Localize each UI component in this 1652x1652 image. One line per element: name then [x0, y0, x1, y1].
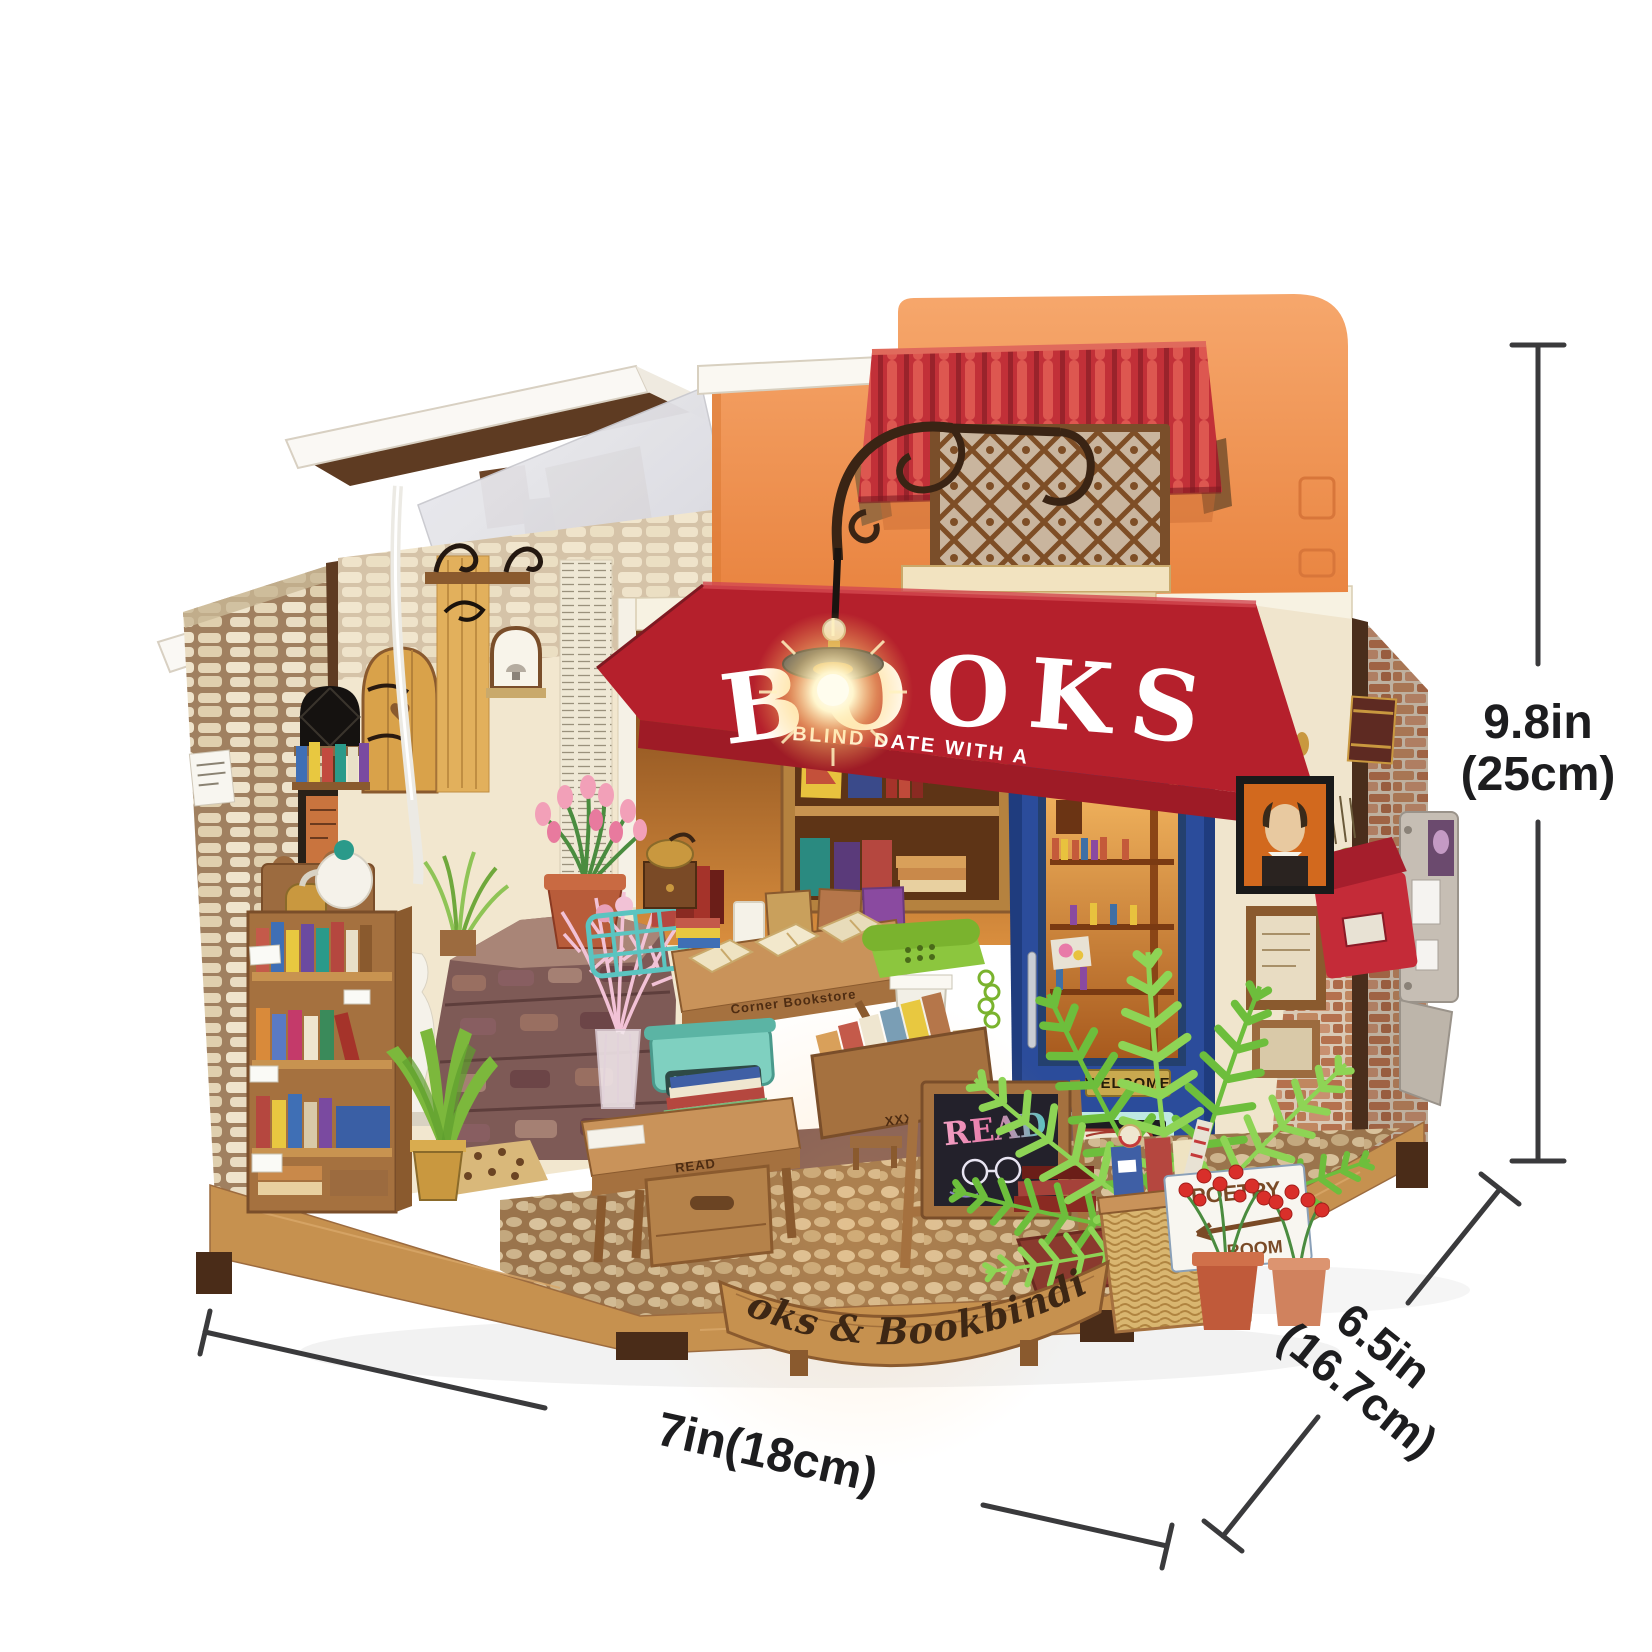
left-bookshelf	[248, 906, 412, 1212]
door-handle	[1028, 952, 1036, 1048]
shakespeare-portrait	[1236, 776, 1334, 894]
height-in-label: 9.8in	[1483, 696, 1592, 749]
product-photo: WELCOME OPEN BOOKS BLIND DATE	[0, 0, 1652, 1652]
magazine-box	[646, 1166, 772, 1266]
book-plaque	[1348, 697, 1396, 764]
dim-height: 9.8in (25cm)	[1461, 345, 1616, 1161]
wall-niche	[486, 628, 546, 698]
coffee-grinder	[644, 834, 696, 908]
orange-facade	[636, 294, 1352, 630]
lattice-window	[902, 424, 1170, 612]
height-cm-label: (25cm)	[1461, 748, 1616, 801]
